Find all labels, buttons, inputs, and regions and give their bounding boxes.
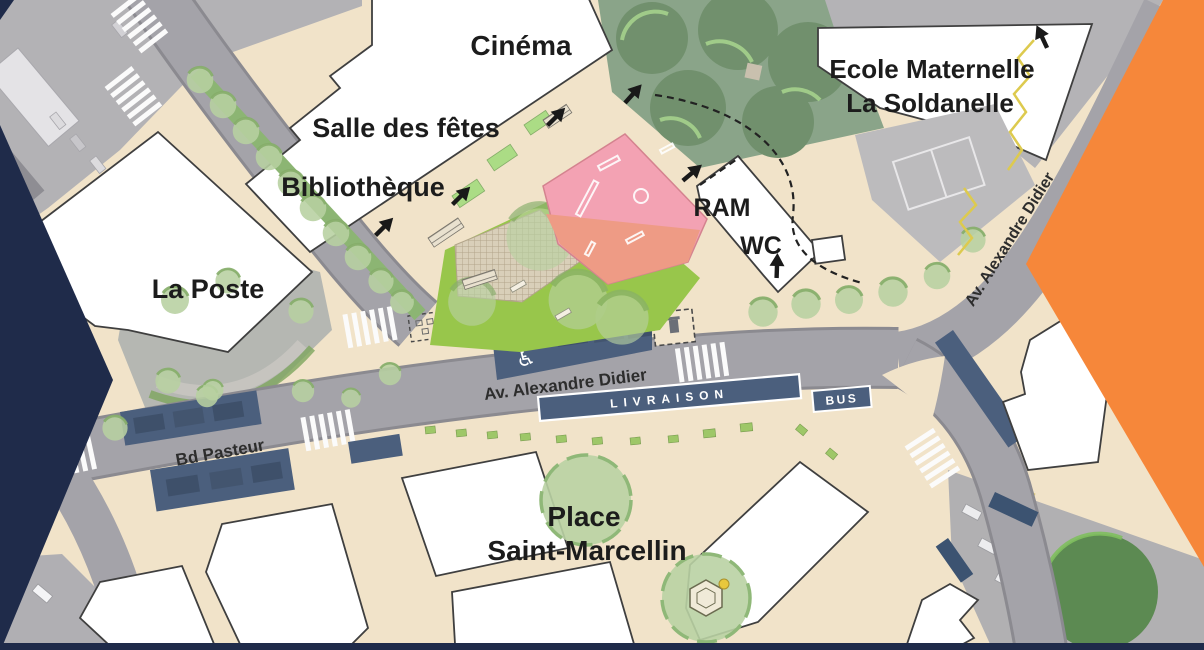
- bus-zone: BUS: [812, 386, 872, 412]
- pavilion-tree: [662, 554, 750, 642]
- trash-icon: [669, 319, 679, 333]
- label-salle-des-fetes: Salle des fêtes: [312, 113, 500, 143]
- label-ram: RAM: [694, 194, 751, 222]
- map-canvas: ♿ LIVRAISON BUS: [0, 0, 1204, 650]
- bottom-bar: [0, 643, 1204, 650]
- label-bibliotheque: Bibliothèque: [281, 172, 445, 202]
- label-cinema: Cinéma: [470, 30, 572, 61]
- site-plan-map: ♿ LIVRAISON BUS: [0, 0, 1204, 650]
- bus-label: BUS: [825, 391, 859, 408]
- label-place-line2: Saint-Marcellin: [487, 535, 686, 566]
- label-ecole-line2: La Soldanelle: [846, 88, 1014, 118]
- label-place-line1: Place: [547, 501, 620, 532]
- utility-box: [812, 236, 845, 264]
- label-ecole-line1: Ecole Maternelle: [829, 54, 1034, 84]
- label-wc: WC: [740, 232, 782, 260]
- label-la-poste: La Poste: [152, 274, 265, 304]
